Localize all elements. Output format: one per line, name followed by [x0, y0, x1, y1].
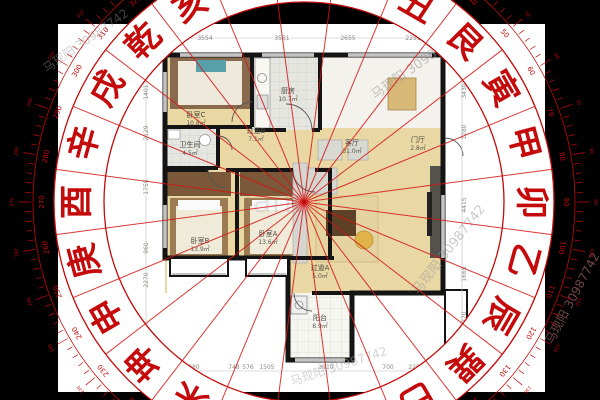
dim-right-1: 1280: [461, 124, 468, 139]
room-label-bedroomA: 卧室A: [259, 229, 278, 238]
bay-window-A: [246, 258, 288, 276]
degree-label-80: 80: [557, 151, 566, 161]
tv-icon: [427, 192, 432, 236]
room-area-bedroomA: 13.6㎡: [258, 238, 277, 246]
mountain-char-7: 卯: [511, 185, 551, 219]
dim-top-2: 2655: [340, 35, 355, 42]
scene-svg: 卧室C 10.8㎡ 厨房 10.7㎡ 卫生间 4.5㎡ 过道B 7.1㎡ 客厅 …: [0, 0, 600, 400]
dim-left-4: 2270: [143, 272, 150, 287]
tiny-degree-label-270: 270: [10, 198, 16, 207]
dim-left-0: 1401: [143, 84, 150, 99]
dim-bottom-6: 700: [382, 364, 394, 371]
bedB-pillows: [178, 200, 220, 210]
room-label-bedroomB: 卧室B: [191, 236, 210, 245]
room-area-foyer: 2.8㎡: [410, 144, 426, 152]
room-label-foyer: 门厅: [411, 135, 425, 144]
compass-center-point: [302, 200, 306, 204]
room-area-bedroomB: 13.9㎡: [190, 245, 209, 253]
room-label-kitchen: 厨房: [281, 86, 295, 95]
kitchen-counter: [255, 58, 270, 128]
dim-top-0: 3554: [197, 35, 212, 42]
wardrobeB: [167, 172, 231, 196]
screenshot-stage: 卧室C 10.8㎡ 厨房 10.7㎡ 卫生间 4.5㎡ 过道B 7.1㎡ 客厅 …: [0, 0, 600, 400]
tiny-degree-label-80: 80: [588, 148, 595, 155]
bedC-pillow: [196, 60, 226, 72]
dim-right-2: 4415: [461, 197, 468, 212]
room-area-bedroomC: 10.8㎡: [186, 119, 205, 127]
degree-label-270: 270: [38, 195, 46, 208]
degree-label-90: 90: [562, 198, 570, 207]
room-label-bathroom: 卫生间: [180, 140, 201, 149]
room-area-kitchen: 10.7㎡: [278, 95, 297, 103]
mountain-char-19: 酉: [57, 185, 97, 219]
dim-left-3: 960: [143, 242, 150, 254]
bath-sink-icon: [168, 130, 180, 139]
tiny-degree-label-90: 90: [593, 199, 599, 205]
toilet-icon: [200, 135, 211, 146]
dim-bottom-3: 576: [242, 364, 254, 371]
side-table: [355, 231, 373, 249]
dim-bottom-4: 1505: [259, 364, 274, 371]
dim-left-1: 2129: [143, 125, 150, 140]
